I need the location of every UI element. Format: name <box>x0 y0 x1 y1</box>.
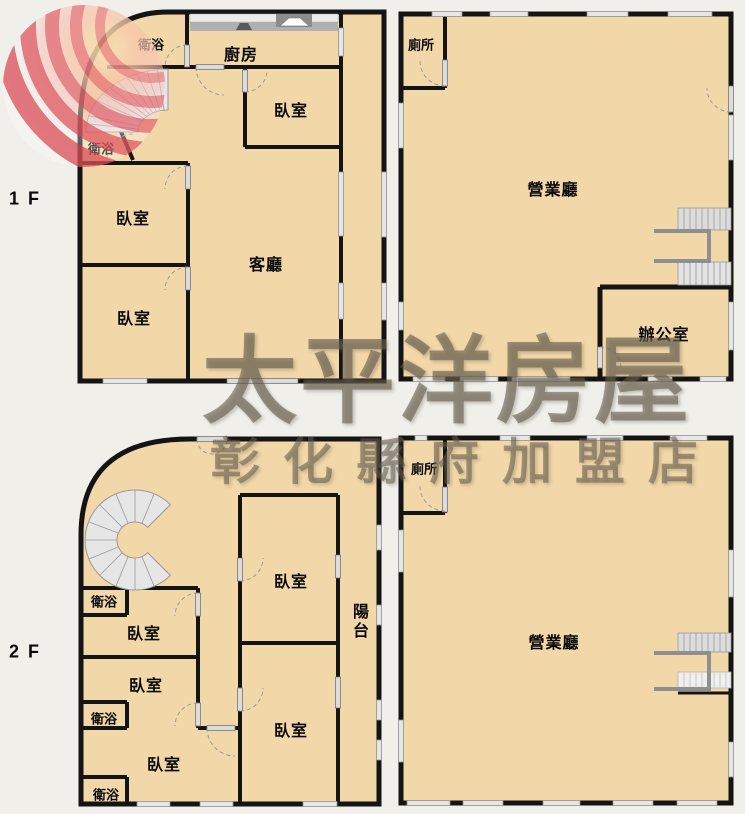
kitchen-counter <box>190 14 338 31</box>
f1-left-unit <box>80 12 387 384</box>
floor-plan-canvas <box>0 0 745 814</box>
f2-right-doors <box>443 487 448 512</box>
f2-left-unit <box>81 437 382 807</box>
f1-right-unit <box>399 12 734 382</box>
f2-right-unit <box>399 436 734 806</box>
floor-plan-page: 1 F 2 F 衛浴 廚房 臥室 衛浴 臥室 臥室 客廳 廁所 營業廳 辦公室 … <box>0 0 745 814</box>
